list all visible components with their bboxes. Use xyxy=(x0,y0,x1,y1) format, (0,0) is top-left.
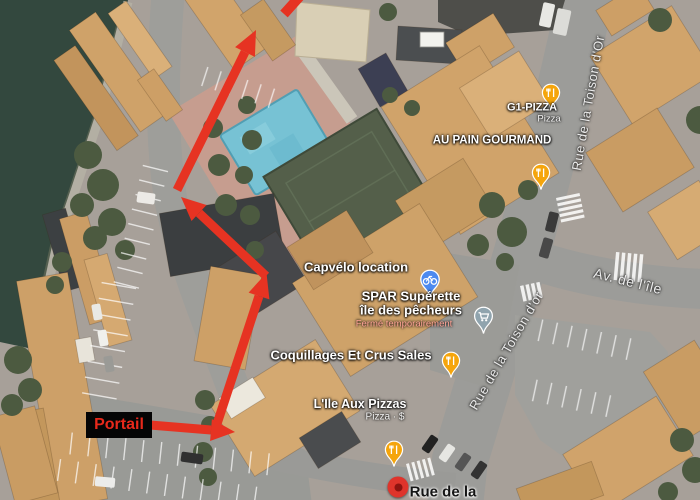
portail-annotation: Portail xyxy=(86,412,152,438)
satellite-map[interactable]: G1-PIZZA Pizza AU PAIN GOURMAND Capvélo … xyxy=(0,0,700,500)
poi-label-g1-pizza[interactable]: G1-PIZZA xyxy=(507,102,557,115)
poi-label-au-pain-gourmand[interactable]: AU PAIN GOURMAND xyxy=(433,134,552,147)
restaurant-pin-icon xyxy=(531,163,551,191)
labels-layer: G1-PIZZA Pizza AU PAIN GOURMAND Capvélo … xyxy=(0,0,700,500)
poi-label-spar-line2[interactable]: île des pêcheurs xyxy=(360,304,462,319)
poi-label-ile-aux-pizzas[interactable]: L'Ile Aux Pizzas xyxy=(314,397,407,411)
restaurant-pin-icon xyxy=(384,440,404,468)
poi-category-ile-aux-pizzas: Pizza · $ xyxy=(366,411,405,423)
destination-marker[interactable] xyxy=(388,477,409,498)
destination-dot-icon xyxy=(394,483,402,491)
supermarket-pin-icon xyxy=(473,306,494,335)
poi-label-capvelo[interactable]: Capvélo location xyxy=(304,261,408,276)
poi-category-g1-pizza: Pizza xyxy=(537,115,560,126)
poi-status-spar: Fermé temporairement xyxy=(356,320,453,331)
street-label-av-de-lile: Av. de l'île xyxy=(592,265,664,298)
street-label-rue-de-la: Rue de la xyxy=(410,483,477,500)
street-label-toison-dor-top: Rue de la Toison d'Or xyxy=(570,34,608,171)
poi-label-coquillages[interactable]: Coquillages Et Crus Sales xyxy=(270,349,431,364)
restaurant-pin-icon xyxy=(441,351,461,379)
